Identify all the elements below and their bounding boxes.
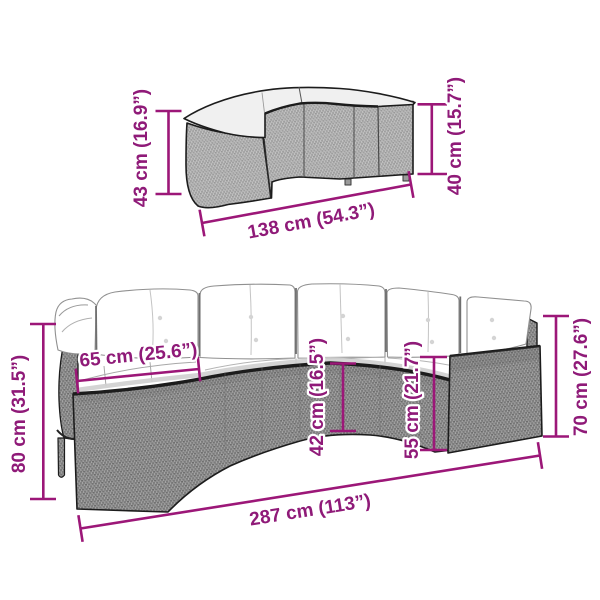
svg-text:43 cm (16.9”): 43 cm (16.9”) xyxy=(131,89,152,207)
svg-text:70 cm (27.6”): 70 cm (27.6”) xyxy=(571,318,592,436)
svg-text:80 cm (31.5”): 80 cm (31.5”) xyxy=(9,355,30,473)
svg-text:40 cm (15.7”): 40 cm (15.7”) xyxy=(445,77,466,195)
svg-text:55 cm (21.7”): 55 cm (21.7”) xyxy=(402,341,423,459)
svg-text:287 cm (113”): 287 cm (113”) xyxy=(248,491,372,531)
svg-text:138 cm (54.3”): 138 cm (54.3”) xyxy=(246,199,377,243)
svg-text:42 cm (16.5”): 42 cm (16.5”) xyxy=(307,338,328,456)
